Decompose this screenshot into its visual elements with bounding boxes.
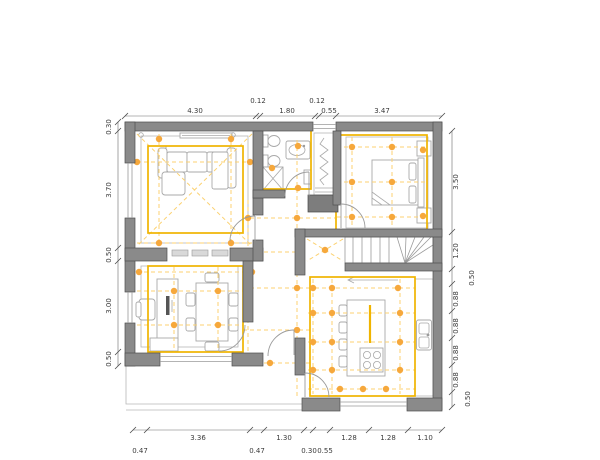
dim-label: 0.30 (301, 447, 317, 455)
window-left-living (128, 163, 132, 218)
window-left-office (128, 292, 132, 323)
staircase (345, 237, 433, 283)
office-dining-room (136, 266, 238, 351)
cooktop (360, 348, 383, 372)
dim-label: 0.50 (105, 247, 113, 263)
door-hall-terrace (268, 330, 294, 356)
door-kitchen (305, 373, 329, 397)
dim-label: 3.47 (374, 107, 390, 115)
dim-label: 1.20 (452, 243, 460, 259)
dim-label: 4.30 (187, 107, 203, 115)
dim-label: 0.12 (250, 97, 266, 105)
dim-label: 0.30 (105, 119, 113, 135)
dim-label: 0.47 (249, 447, 265, 455)
window-top (313, 125, 336, 129)
dim-label: 0.50 (105, 351, 113, 367)
bathroom (263, 135, 311, 190)
dim-label: 1.10 (417, 434, 433, 442)
monitor (166, 296, 170, 315)
coffee-table (162, 172, 185, 195)
dim-label: 0.12 (309, 97, 325, 105)
dim-label: 0.88 (452, 345, 460, 361)
living-room (139, 133, 248, 243)
dim-label: 3.36 (190, 434, 206, 442)
window-bottom-office (160, 357, 232, 362)
dim-label: 0.50 (464, 391, 472, 407)
dim-label: 0.88 (452, 318, 460, 334)
dim-label: 0.50 (468, 270, 476, 286)
divider-dashed-segment (172, 250, 188, 256)
dim-label: 3.70 (105, 182, 113, 198)
kitchen-island (339, 300, 385, 376)
dining-table (186, 273, 238, 351)
dimension-chain-left: 0.30 3.70 0.50 3.00 0.50 (105, 119, 121, 369)
window-bottom-kitchen (340, 402, 407, 406)
dimension-chain-bottom: 3.36 1.30 1.28 1.28 1.10 0.47 0.47 0.30 … (130, 427, 445, 455)
dim-label: 1.30 (276, 434, 292, 442)
floor-plan-page: 4.30 0.12 1.80 0.12 0.55 3.47 0.30 3.70 … (0, 0, 600, 460)
dim-label: 1.80 (279, 107, 295, 115)
dim-label: 0.55 (317, 447, 333, 455)
divider-dashed-segment (192, 250, 208, 256)
dim-label: 0.55 (321, 107, 337, 115)
dim-label: 3.00 (105, 298, 113, 314)
dimension-chain-top: 4.30 0.12 1.80 0.12 0.55 3.47 (122, 97, 445, 119)
kitchen-counter (415, 279, 433, 396)
dim-label: 0.47 (132, 447, 148, 455)
dim-label: 0.88 (452, 372, 460, 388)
dimension-chain-right: 3.50 1.20 0.50 0.88 0.88 0.88 0.88 0.50 (449, 128, 476, 410)
floor-plan: 4.30 0.12 1.80 0.12 0.55 3.47 0.30 3.70 … (0, 0, 600, 460)
dim-label: 3.50 (452, 174, 460, 190)
dim-label: 1.28 (380, 434, 396, 442)
toilet (263, 135, 280, 147)
divider-dashed-segment (212, 250, 228, 256)
kitchen-sink (417, 320, 432, 350)
stair-direction-arrow (348, 277, 398, 283)
dim-label: 0.88 (452, 291, 460, 307)
kitchen (339, 279, 433, 396)
wardrobe-closet (314, 133, 335, 195)
dim-label: 1.28 (341, 434, 357, 442)
